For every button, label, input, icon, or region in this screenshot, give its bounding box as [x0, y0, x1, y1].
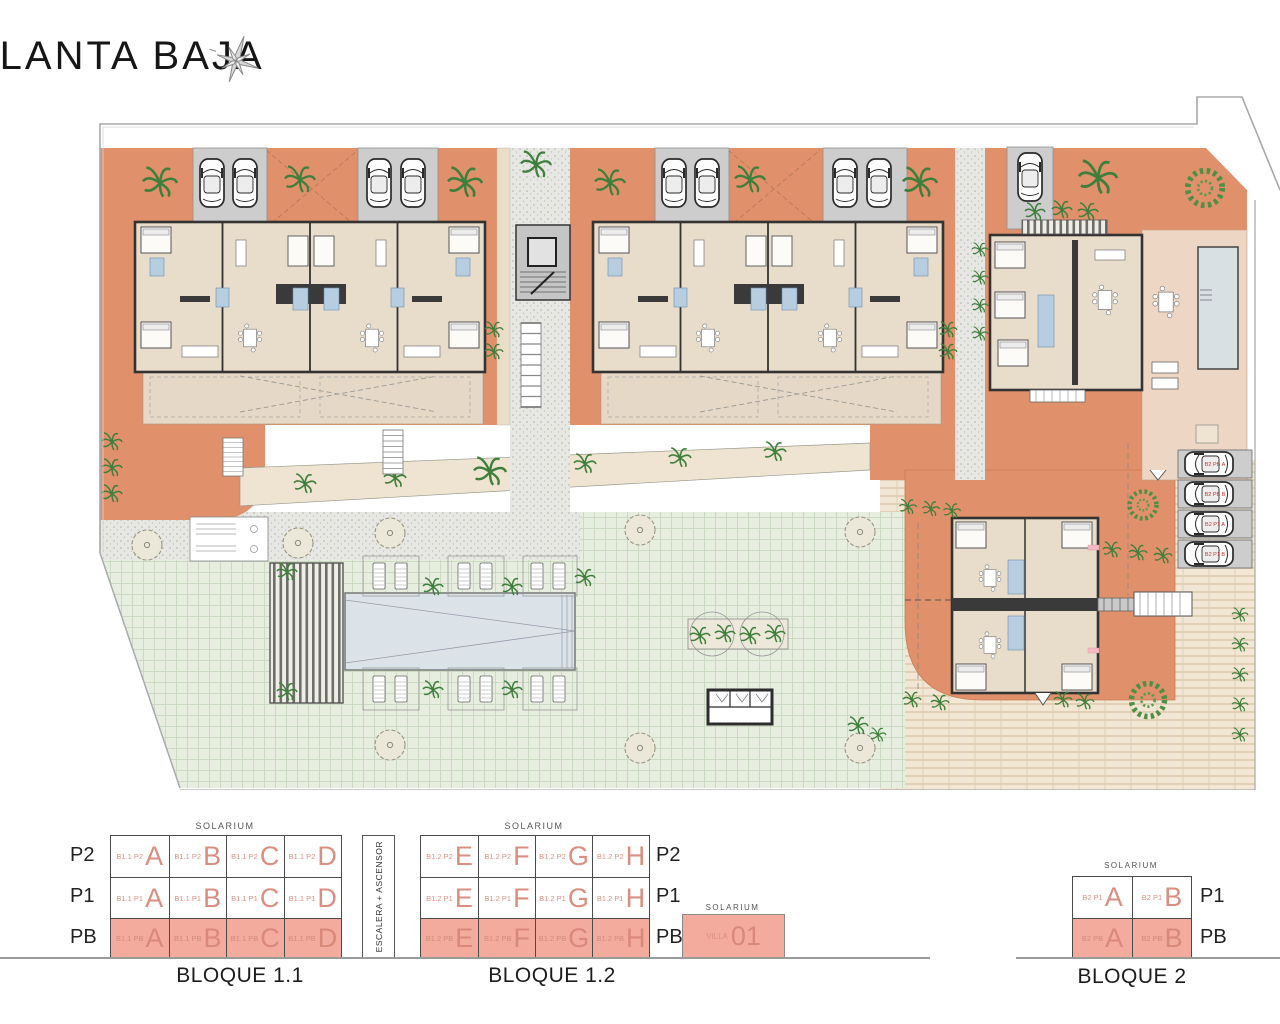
solarium-label-villa: SOLARIUM [682, 903, 783, 912]
site-plan: B2 PB A B2 PB B B2 P1 A B2 P1 B [0, 85, 1280, 790]
unit-letter: E [455, 885, 473, 912]
unit-cell: B1.2 PBF [478, 918, 535, 958]
unit-code: B1.1 PB [174, 934, 202, 943]
unit-letter: A [145, 843, 163, 870]
pool-wc-block [708, 690, 772, 724]
stair-elevator-box: ESCALERA + ASCENSOR [362, 835, 395, 959]
solarium-label-b11: SOLARIUM [110, 821, 340, 831]
floor-label-b12-p1: P1 [656, 885, 680, 908]
villa-pool [1198, 247, 1238, 369]
unit-letter: B [1164, 884, 1182, 911]
unit-letter: C [260, 843, 280, 870]
unit-code: B1.2 PB [484, 934, 512, 943]
unit-code: B2 P1 [1082, 893, 1102, 902]
floor-label-b2-pb: PB [1200, 926, 1227, 949]
unit-letter: A [1105, 925, 1123, 952]
unit-cell: B2 PBA [1073, 918, 1132, 958]
unit-grid-bloque-1-2: B1.2 P2E B1.2 P2F B1.2 P2G B1.2 P2H B1.2… [420, 835, 650, 959]
unit-letter: C [260, 885, 280, 912]
building-bloque-1-1 [135, 222, 485, 372]
compass-star-icon [205, 30, 267, 92]
unit-letter: G [568, 843, 589, 870]
unit-letter: A [1105, 884, 1123, 911]
unit-code: B2 PB [1141, 934, 1162, 943]
unit-letter: G [568, 925, 589, 952]
block-name-bloque-1-2: BLOQUE 1.2 [438, 964, 666, 988]
unit-cell: B1.2 P1E [421, 877, 478, 918]
unit-cell: B1.2 P1G [535, 877, 592, 918]
unit-cell: B1.1 P1C [226, 877, 284, 918]
unit-cell: B1.2 P2G [535, 836, 592, 877]
unit-code: B1.2 P1 [426, 894, 453, 903]
parking-label: B2 P1 B [1205, 552, 1226, 558]
parking-label: B2 P1 A [1205, 522, 1225, 528]
unit-code: B2 PB [1082, 934, 1103, 943]
unit-code: B1.1 P2 [231, 852, 258, 861]
unit-cell: B1.1 PBC [226, 918, 284, 958]
unit-code: B1.1 P1 [289, 894, 316, 903]
unit-code: B1.1 P1 [116, 894, 143, 903]
floor-label-b2-p1: P1 [1200, 885, 1224, 908]
unit-letter: G [568, 885, 589, 912]
unit-cell: B1.2 P1F [478, 877, 535, 918]
villa-number: 01 [731, 923, 761, 950]
unit-code: B1.2 P2 [597, 852, 624, 861]
unit-letter: B [204, 925, 222, 952]
unit-code: B1.2 P2 [426, 852, 453, 861]
parking-label: B2 PB B [1205, 492, 1226, 498]
unit-code: B1.2 P1 [539, 894, 566, 903]
unit-grid-bloque-1-1: B1.1 P2A B1.1 P2B B1.1 P2C B1.1 P2D B1.1… [110, 835, 342, 959]
unit-code: B1.2 P2 [539, 852, 566, 861]
solarium-label-b12: SOLARIUM [420, 821, 648, 831]
unit-letter: F [513, 843, 530, 870]
unit-code: B1.1 PB [288, 934, 316, 943]
solarium-label-b2: SOLARIUM [1072, 861, 1190, 870]
floor-label-b11-p1: P1 [70, 885, 94, 908]
unit-code: B1.1 P2 [289, 852, 316, 861]
unit-letter: B [1165, 925, 1183, 952]
ground-line-left [0, 957, 930, 959]
unit-cell: B1.2 PBH [592, 918, 649, 958]
unit-code: B1.1 P1 [174, 894, 201, 903]
unit-cell: B1.1 P1A [111, 877, 169, 918]
unit-letter: F [513, 885, 530, 912]
unit-letter: H [626, 843, 646, 870]
info-sign [190, 517, 268, 561]
floor-label-b11-p2: P2 [70, 844, 94, 867]
unit-cell: B1.1 P1B [169, 877, 227, 918]
block-name-bloque-1-1: BLOQUE 1.1 [125, 964, 355, 988]
unit-letter: H [626, 885, 646, 912]
unit-code: B1.1 PB [231, 934, 259, 943]
unit-letter: F [514, 925, 531, 952]
unit-letter: E [455, 843, 473, 870]
unit-code: B1.2 PB [596, 934, 624, 943]
villa-code: VILLA [706, 932, 728, 941]
unit-letter: C [260, 925, 280, 952]
unit-cell: B1.2 P1H [592, 877, 649, 918]
ground-line-right [1016, 957, 1280, 959]
unit-code: B1.1 PB [116, 934, 144, 943]
unit-letter: B [203, 885, 221, 912]
unit-code: B1.2 P1 [597, 894, 624, 903]
unit-cell: B2 P1B [1132, 877, 1191, 918]
unit-code: B1.2 PB [426, 934, 454, 943]
stair-elevator-label: ESCALERA + ASCENSOR [374, 841, 384, 952]
unit-cell: B1.1 PBB [169, 918, 227, 958]
parking-label: B2 PB A [1205, 462, 1226, 468]
unit-cell: B2 P1A [1073, 877, 1132, 918]
unit-letter: D [318, 925, 338, 952]
unit-cell: B1.1 PBA [111, 918, 169, 958]
unit-letter: B [203, 843, 221, 870]
unit-code: B2 P1 [1142, 893, 1162, 902]
unit-code: B1.1 P1 [231, 894, 258, 903]
unit-cell: B2 PBB [1132, 918, 1191, 958]
unit-code: B1.2 P1 [484, 894, 511, 903]
unit-code: B1.1 P2 [174, 852, 201, 861]
unit-cell: B1.1 P2D [284, 836, 342, 877]
block-name-bloque-2: BLOQUE 2 [1062, 965, 1202, 989]
unit-code: B1.2 PB [539, 934, 567, 943]
unit-letter: H [626, 925, 646, 952]
villa-box: VILLA 01 [682, 914, 785, 959]
floor-label-b12-pb: PB [656, 926, 683, 949]
unit-code: B1.2 P2 [484, 852, 511, 861]
unit-letter: A [145, 885, 163, 912]
unit-cell: B1.1 P2A [111, 836, 169, 877]
unit-letter: E [455, 925, 473, 952]
unit-cell: B1.2 P2F [478, 836, 535, 877]
unit-cell: B1.1 P2C [226, 836, 284, 877]
unit-cell: B1.1 PBD [284, 918, 342, 958]
unit-letter: A [146, 925, 164, 952]
floor-plan-page: PLANTA BAJA [0, 0, 1280, 1024]
unit-cell: B1.2 P2E [421, 836, 478, 877]
unit-letter: D [317, 885, 337, 912]
unit-letter: D [317, 843, 337, 870]
floor-label-b12-p2: P2 [656, 844, 680, 867]
unit-cell: B1.1 P2B [169, 836, 227, 877]
unit-cell: B1.2 PBG [535, 918, 592, 958]
unit-code: B1.1 P2 [116, 852, 143, 861]
unit-cell: B1.2 PBE [421, 918, 478, 958]
unit-cell: B1.1 P1D [284, 877, 342, 918]
building-bloque-1-2 [593, 222, 943, 372]
floor-label-b11-pb: PB [70, 926, 97, 949]
unit-grid-bloque-2: B2 P1A B2 P1B B2 PBA B2 PBB [1072, 876, 1192, 959]
unit-cell: B1.2 P2H [592, 836, 649, 877]
